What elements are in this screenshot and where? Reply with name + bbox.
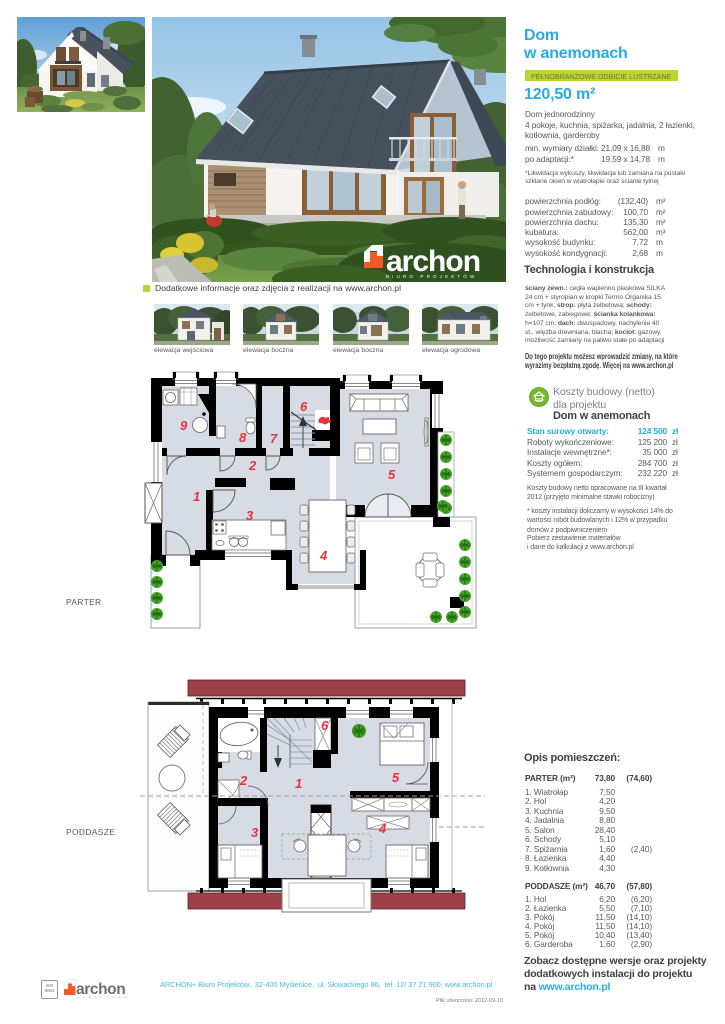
svg-text:6: 6 [300, 399, 308, 414]
svg-text:archon: archon [76, 981, 125, 998]
svg-text:3: 3 [246, 508, 254, 523]
svg-text:9: 9 [180, 418, 188, 433]
svg-text:6: 6 [321, 718, 329, 733]
svg-text:1: 1 [193, 489, 200, 504]
svg-text:5: 5 [392, 770, 400, 785]
svg-text:5: 5 [388, 467, 396, 482]
svg-text:BIURO PROJEKTÓW: BIURO PROJEKTÓW [386, 273, 477, 279]
svg-text:7: 7 [270, 431, 278, 446]
svg-text:1: 1 [295, 776, 302, 791]
svg-text:3: 3 [251, 825, 259, 840]
svg-text:8: 8 [239, 430, 247, 445]
svg-text:2: 2 [248, 458, 257, 473]
svg-text:4: 4 [319, 548, 328, 563]
svg-text:2: 2 [239, 773, 248, 788]
svg-text:4: 4 [378, 821, 387, 836]
